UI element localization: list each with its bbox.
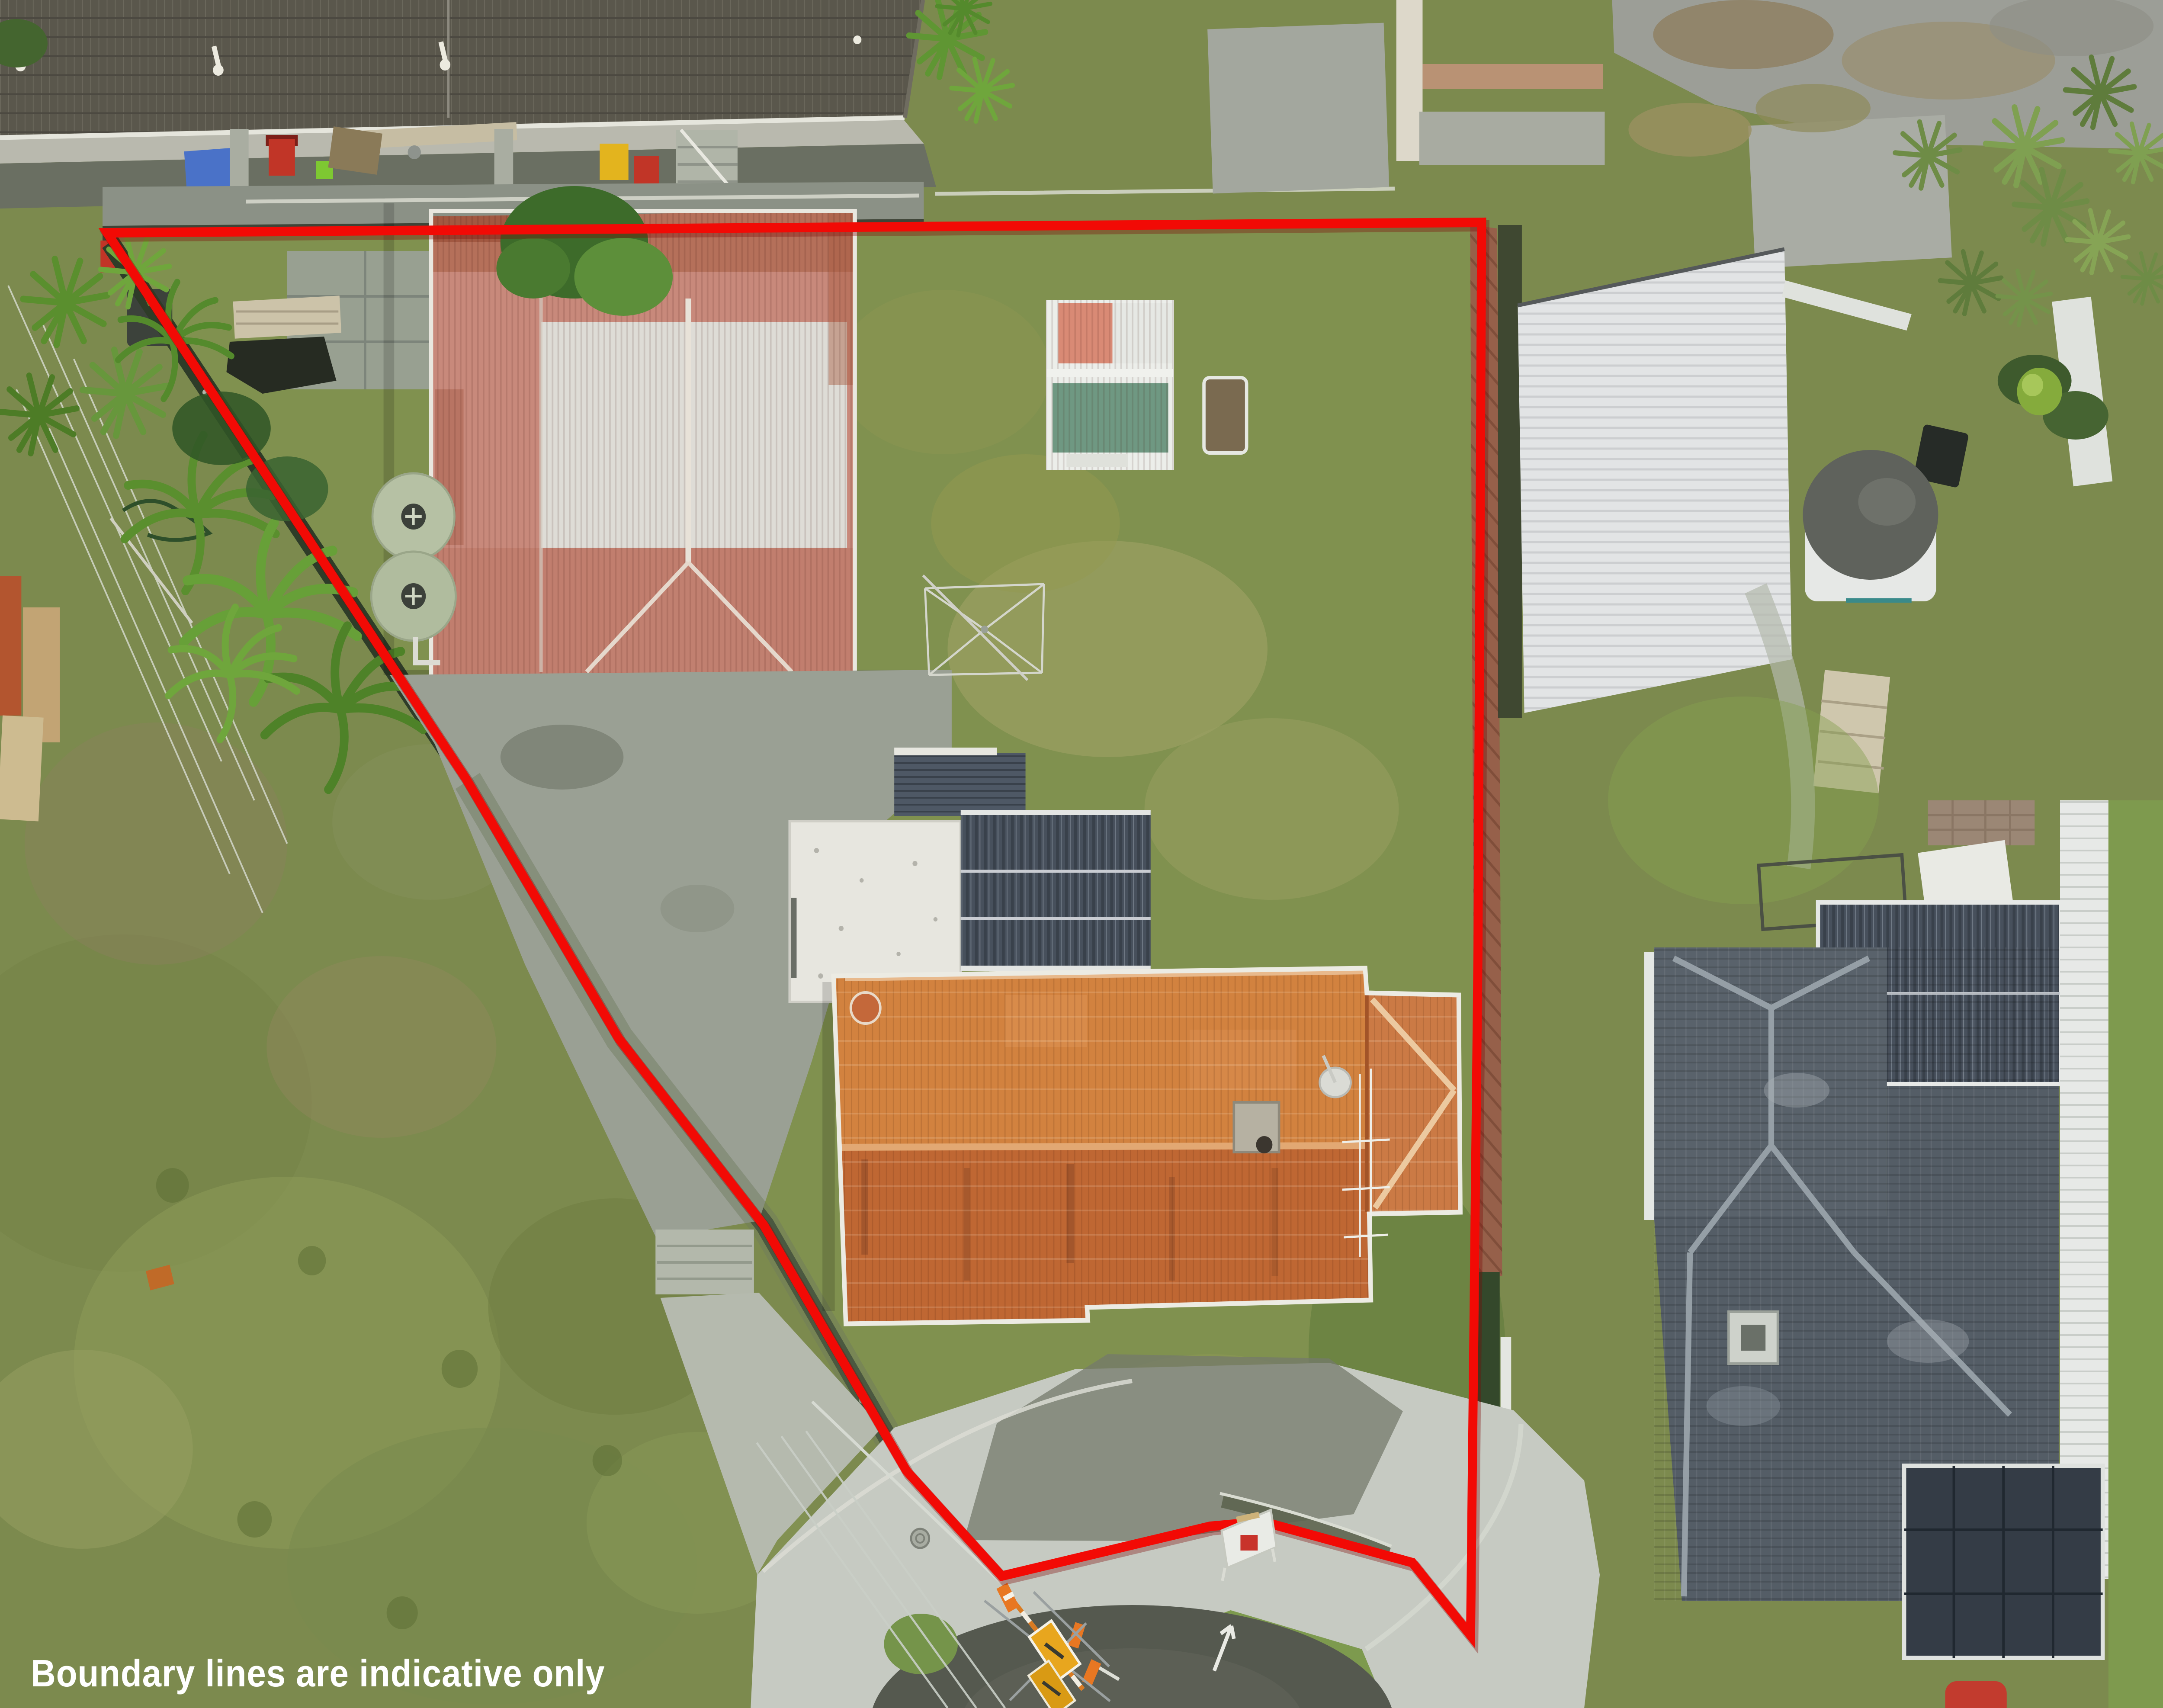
main-house <box>822 968 1461 1330</box>
dry-lawn-patch <box>1145 718 1399 900</box>
aerial-photo: Boundary lines are indicative only <box>0 0 2163 1708</box>
timber-ramp <box>328 126 382 175</box>
dirt-patch <box>1653 0 1833 69</box>
chimney-pot <box>1256 1136 1272 1153</box>
aerial-photo-canvas: Boundary lines are indicative only <box>0 0 2163 1708</box>
side-lawn <box>2108 800 2163 1708</box>
white-retaining-wall <box>1396 0 1423 161</box>
concrete-pad <box>1207 23 1389 194</box>
yellow-wheelie-bin <box>600 144 628 180</box>
fascia <box>894 748 997 755</box>
red-wheelie-bin <box>269 139 295 176</box>
overhanging-tree <box>574 238 673 316</box>
block-pillar <box>230 129 249 194</box>
metal-roller <box>408 145 421 159</box>
concrete-pad <box>1419 112 1605 165</box>
dirt-patch <box>266 956 496 1138</box>
red-slat-panel <box>0 576 21 716</box>
lawn-patch <box>1608 697 1879 904</box>
fence-boards <box>2060 800 2108 1579</box>
round-vent <box>851 992 880 1024</box>
shed-corrugation <box>1514 242 1797 718</box>
manhole <box>911 1529 929 1548</box>
plywood-sheet <box>0 716 44 822</box>
chimney-flue <box>1741 1325 1765 1351</box>
boundary-disclaimer-text: Boundary lines are indicative only <box>31 1652 605 1695</box>
pergola-roof <box>961 812 1151 970</box>
red-sign-panel <box>1240 1535 1258 1551</box>
lawn-patch <box>837 290 1050 454</box>
ridge-cap <box>837 1146 1368 1147</box>
shrub-highlight <box>2022 374 2043 396</box>
pergola-beam <box>961 810 1151 815</box>
dry-lawn-patch <box>931 454 1120 593</box>
cottage <box>384 186 919 683</box>
round-water-tank <box>1803 450 1938 601</box>
brick-pavers <box>1928 800 2035 845</box>
dry-scrub <box>1755 84 1871 132</box>
garden-bed <box>1204 378 1247 453</box>
shadow <box>822 982 834 1311</box>
lichen <box>1707 1386 1781 1426</box>
lumber-pile <box>233 295 341 338</box>
block-pillar <box>494 129 513 190</box>
tank-top-mottle <box>1858 478 1916 526</box>
overhanging-tree <box>496 238 570 299</box>
north-roof <box>0 0 924 138</box>
lichen <box>1764 1073 1829 1108</box>
lichen <box>1887 1320 1969 1363</box>
fence-shadow-gap <box>1498 225 1522 718</box>
stain <box>501 725 623 790</box>
slat-deck-roof <box>894 753 1025 816</box>
dirt-patch <box>25 722 287 965</box>
stain <box>661 885 735 932</box>
shed-corrugation <box>1046 300 1174 470</box>
red-car <box>1945 1681 2006 1708</box>
white-wall <box>1644 952 1655 1220</box>
dry-scrub <box>1628 103 1751 157</box>
rusty-rail <box>1422 64 1603 89</box>
shed-step <box>1066 454 1128 467</box>
edge-shadow <box>791 898 796 978</box>
main-roof <box>834 968 1461 1330</box>
